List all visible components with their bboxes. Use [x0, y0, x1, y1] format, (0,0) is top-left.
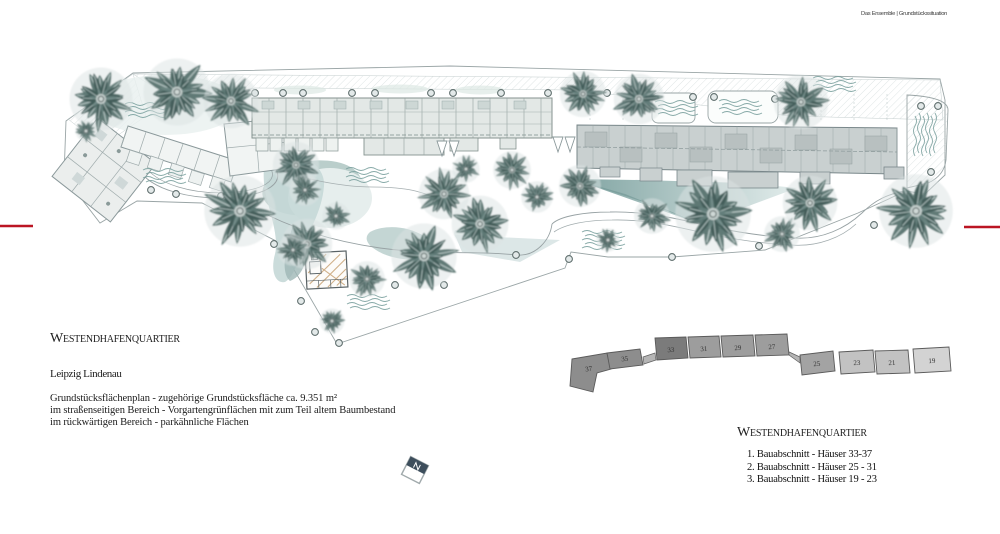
svg-text:23: 23 — [853, 359, 861, 367]
svg-text:25: 25 — [813, 360, 821, 369]
svg-text:21: 21 — [888, 359, 896, 367]
svg-text:33: 33 — [667, 346, 675, 355]
svg-text:35: 35 — [621, 355, 629, 364]
svg-text:19: 19 — [928, 357, 936, 365]
svg-text:29: 29 — [734, 344, 742, 353]
svg-text:27: 27 — [768, 343, 776, 352]
svg-text:31: 31 — [700, 345, 708, 354]
